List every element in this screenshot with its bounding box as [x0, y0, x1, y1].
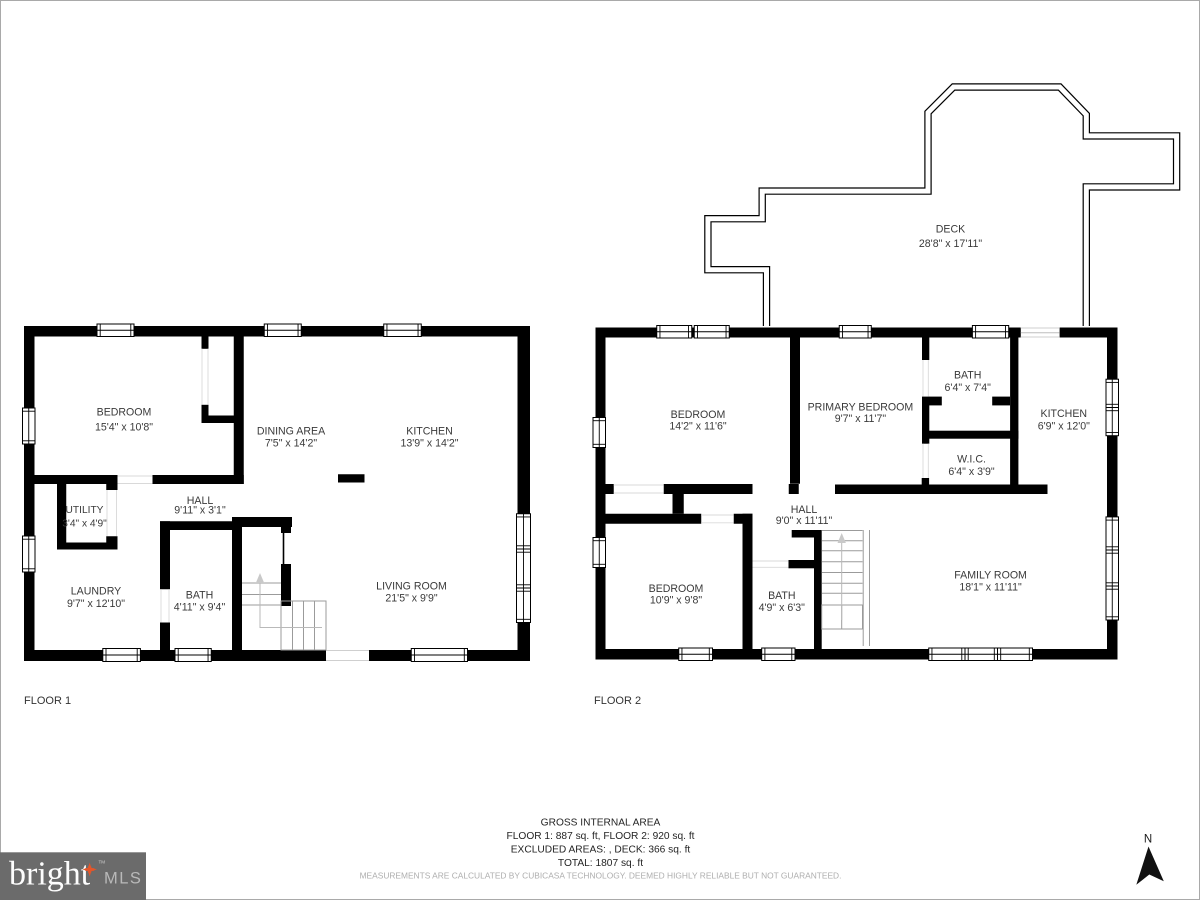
svg-text:15'4" x 10'8": 15'4" x 10'8" [95, 422, 153, 434]
svg-text:MLS: MLS [104, 870, 142, 888]
svg-text:GROSS INTERNAL AREA: GROSS INTERNAL AREA [541, 818, 661, 829]
svg-text:N: N [1144, 834, 1152, 846]
svg-text:9'7" x 12'10": 9'7" x 12'10" [67, 598, 125, 610]
svg-text:9'0" x 11'11": 9'0" x 11'11" [776, 515, 833, 527]
svg-text:18'1" x 11'11": 18'1" x 11'11" [959, 581, 1022, 593]
svg-text:BATH: BATH [768, 590, 795, 602]
svg-text:21'5" x 9'9": 21'5" x 9'9" [385, 593, 437, 605]
svg-text:W.I.C.: W.I.C. [957, 454, 986, 466]
svg-text:KITCHEN: KITCHEN [1041, 408, 1088, 420]
svg-text:BEDROOM: BEDROOM [671, 409, 726, 421]
svg-text:9'11" x 3'1": 9'11" x 3'1" [174, 505, 226, 517]
svg-text:TM: TM [99, 860, 106, 865]
svg-text:BEDROOM: BEDROOM [97, 407, 152, 419]
svg-text:6'4" x 7'4": 6'4" x 7'4" [945, 382, 992, 394]
svg-text:BEDROOM: BEDROOM [649, 583, 704, 595]
svg-text:9'7" x 11'7": 9'7" x 11'7" [835, 413, 887, 425]
svg-text:MEASUREMENTS ARE CALCULATED BY: MEASUREMENTS ARE CALCULATED BY CUBICASA … [360, 871, 842, 881]
svg-text:6'4" x 3'9": 6'4" x 3'9" [948, 466, 995, 478]
svg-text:KITCHEN: KITCHEN [406, 426, 453, 438]
svg-text:4'9" x 6'3": 4'9" x 6'3" [759, 602, 806, 614]
svg-text:UTILITY: UTILITY [66, 505, 104, 516]
svg-text:DINING AREA: DINING AREA [257, 426, 326, 438]
svg-text:4'11" x 9'4": 4'11" x 9'4" [174, 602, 226, 614]
svg-text:FLOOR 1: 887 sq. ft, FLOOR 2:: FLOOR 1: 887 sq. ft, FLOOR 2: 920 sq. ft [507, 831, 695, 842]
svg-text:6'9" x 12'0": 6'9" x 12'0" [1038, 421, 1090, 433]
svg-text:28'8" x 17'11": 28'8" x 17'11" [919, 238, 982, 250]
svg-text:DECK: DECK [936, 224, 965, 236]
svg-text:7'5" x 14'2": 7'5" x 14'2" [265, 438, 317, 450]
svg-text:LIVING ROOM: LIVING ROOM [376, 581, 447, 593]
svg-text:FAMILY ROOM: FAMILY ROOM [954, 570, 1027, 582]
svg-text:BATH: BATH [954, 370, 981, 382]
svg-text:PRIMARY BEDROOM: PRIMARY BEDROOM [808, 402, 914, 414]
svg-text:14'2" x 11'6": 14'2" x 11'6" [669, 421, 727, 433]
svg-text:LAUNDRY: LAUNDRY [71, 586, 121, 598]
svg-text:3'4" x 4'9": 3'4" x 4'9" [62, 519, 107, 530]
svg-text:bright: bright [9, 856, 91, 893]
svg-text:TOTAL: 1807 sq. ft: TOTAL: 1807 sq. ft [558, 858, 643, 869]
svg-text:EXCLUDED AREAS: , DECK: 366 sq: EXCLUDED AREAS: , DECK: 366 sq. ft [511, 845, 691, 856]
svg-text:13'9" x 14'2": 13'9" x 14'2" [400, 438, 458, 450]
svg-text:FLOOR 2: FLOOR 2 [594, 695, 641, 707]
svg-text:10'9" x 9'8": 10'9" x 9'8" [650, 595, 702, 607]
svg-text:FLOOR 1: FLOOR 1 [24, 695, 71, 707]
svg-text:BATH: BATH [186, 590, 213, 602]
